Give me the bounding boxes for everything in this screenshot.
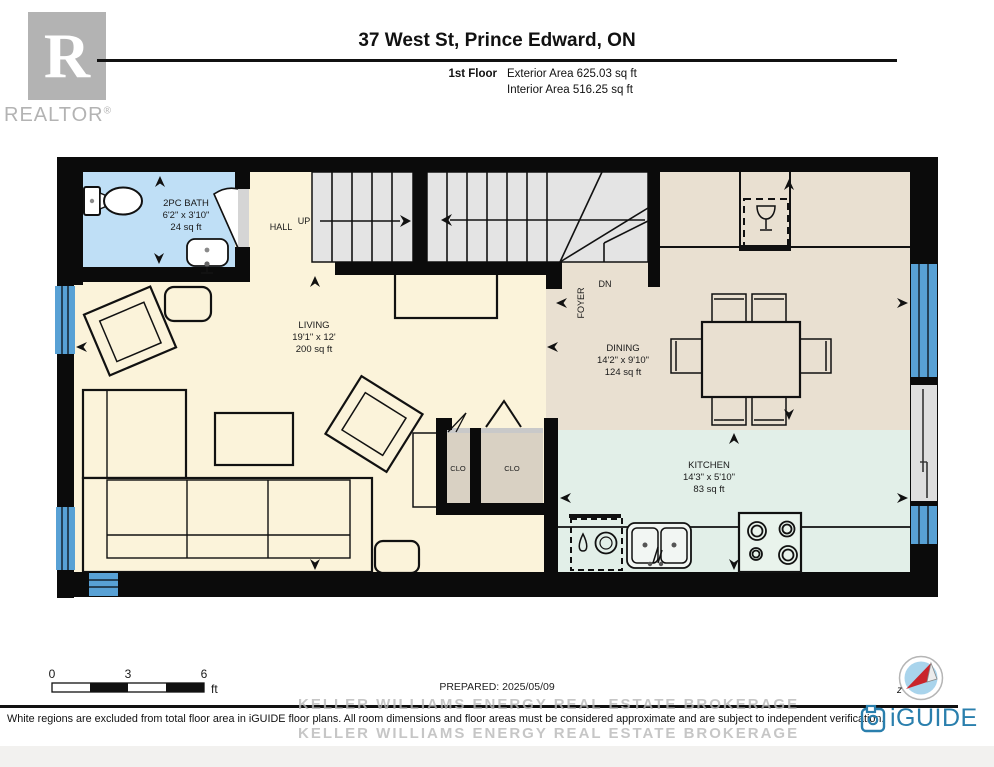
page-title: 37 West St, Prince Edward, ON: [0, 30, 994, 52]
kitchen-room: [558, 430, 910, 572]
sliding-door: [911, 385, 937, 501]
closet-right-label: CLO: [504, 464, 520, 473]
kitchen-area: 83 sq ft: [693, 484, 725, 495]
floorplan-page: R REALTOR® 37 West St, Prince Edward, ON…: [0, 0, 994, 767]
watermark-top: KELLER WILLIAMS ENERGY REAL ESTATE BROKE…: [298, 696, 858, 713]
kitchen-name: KITCHEN: [688, 460, 730, 471]
interior-area: Interior Area 516.25 sq ft: [507, 84, 633, 96]
kitchen-dims: 14'3" x 5'10": [683, 472, 735, 483]
bath-area: 24 sq ft: [170, 222, 202, 233]
stove-icon: [739, 513, 801, 572]
scale-0: 0: [49, 667, 56, 681]
registered-mark: ®: [104, 105, 112, 116]
scale-3: 3: [125, 667, 132, 681]
ottoman: [165, 287, 211, 321]
kitchen-sink-icon: [627, 523, 691, 568]
staircase: [312, 172, 648, 262]
bath-dims: 6'2" x 3'10": [163, 210, 210, 221]
iguide-brand-text: iGUIDE: [890, 704, 978, 733]
realtor-logo: R: [28, 12, 106, 100]
window: [911, 506, 937, 544]
compass-icon: z: [896, 657, 943, 700]
foyer-name: FOYER: [576, 287, 586, 319]
floor-label: 1st Floor: [385, 68, 497, 80]
exterior-area: Exterior Area 625.03 sq ft: [507, 68, 637, 80]
console-table: [395, 273, 497, 318]
dining-name: DINING: [606, 343, 639, 354]
floorplan-svg: 2PC BATH 6'2" x 3'10" 24 sq ft HALL UP D…: [0, 0, 994, 767]
iguide-logo: iGUIDE: [860, 703, 978, 733]
ottoman: [375, 541, 419, 573]
living-name: LIVING: [298, 320, 329, 331]
bottom-strip: [0, 746, 994, 767]
window: [55, 286, 75, 354]
realtor-wordmark: REALTOR®: [4, 104, 124, 127]
prepared-date: PREPARED: 2025/05/09: [0, 681, 994, 693]
stairs-dn-label: DN: [599, 279, 612, 289]
disclaimer-text: White regions are excluded from total fl…: [7, 713, 884, 725]
toilet-icon: [84, 187, 142, 215]
hall-name: HALL: [270, 222, 293, 232]
dining-dims: 14'2" x 9'10": [597, 355, 649, 366]
living-dims: 19'1" x 12': [292, 332, 336, 343]
iguide-camera-icon: [860, 703, 887, 733]
stairs-up-label: UP: [298, 216, 311, 226]
window: [911, 264, 937, 377]
title-divider: [97, 59, 897, 62]
living-area: 200 sq ft: [296, 344, 333, 355]
watermark-bottom: KELLER WILLIAMS ENERGY REAL ESTATE BROKE…: [298, 725, 858, 742]
bath-name: 2PC BATH: [163, 198, 209, 209]
scale-6: 6: [201, 667, 208, 681]
window: [89, 573, 118, 596]
coffee-table: [215, 413, 293, 465]
shelf: [413, 433, 437, 507]
closet-left-label: CLO: [450, 464, 466, 473]
window: [56, 507, 75, 570]
dining-area: 124 sq ft: [605, 367, 642, 378]
dining-table: [702, 322, 800, 397]
